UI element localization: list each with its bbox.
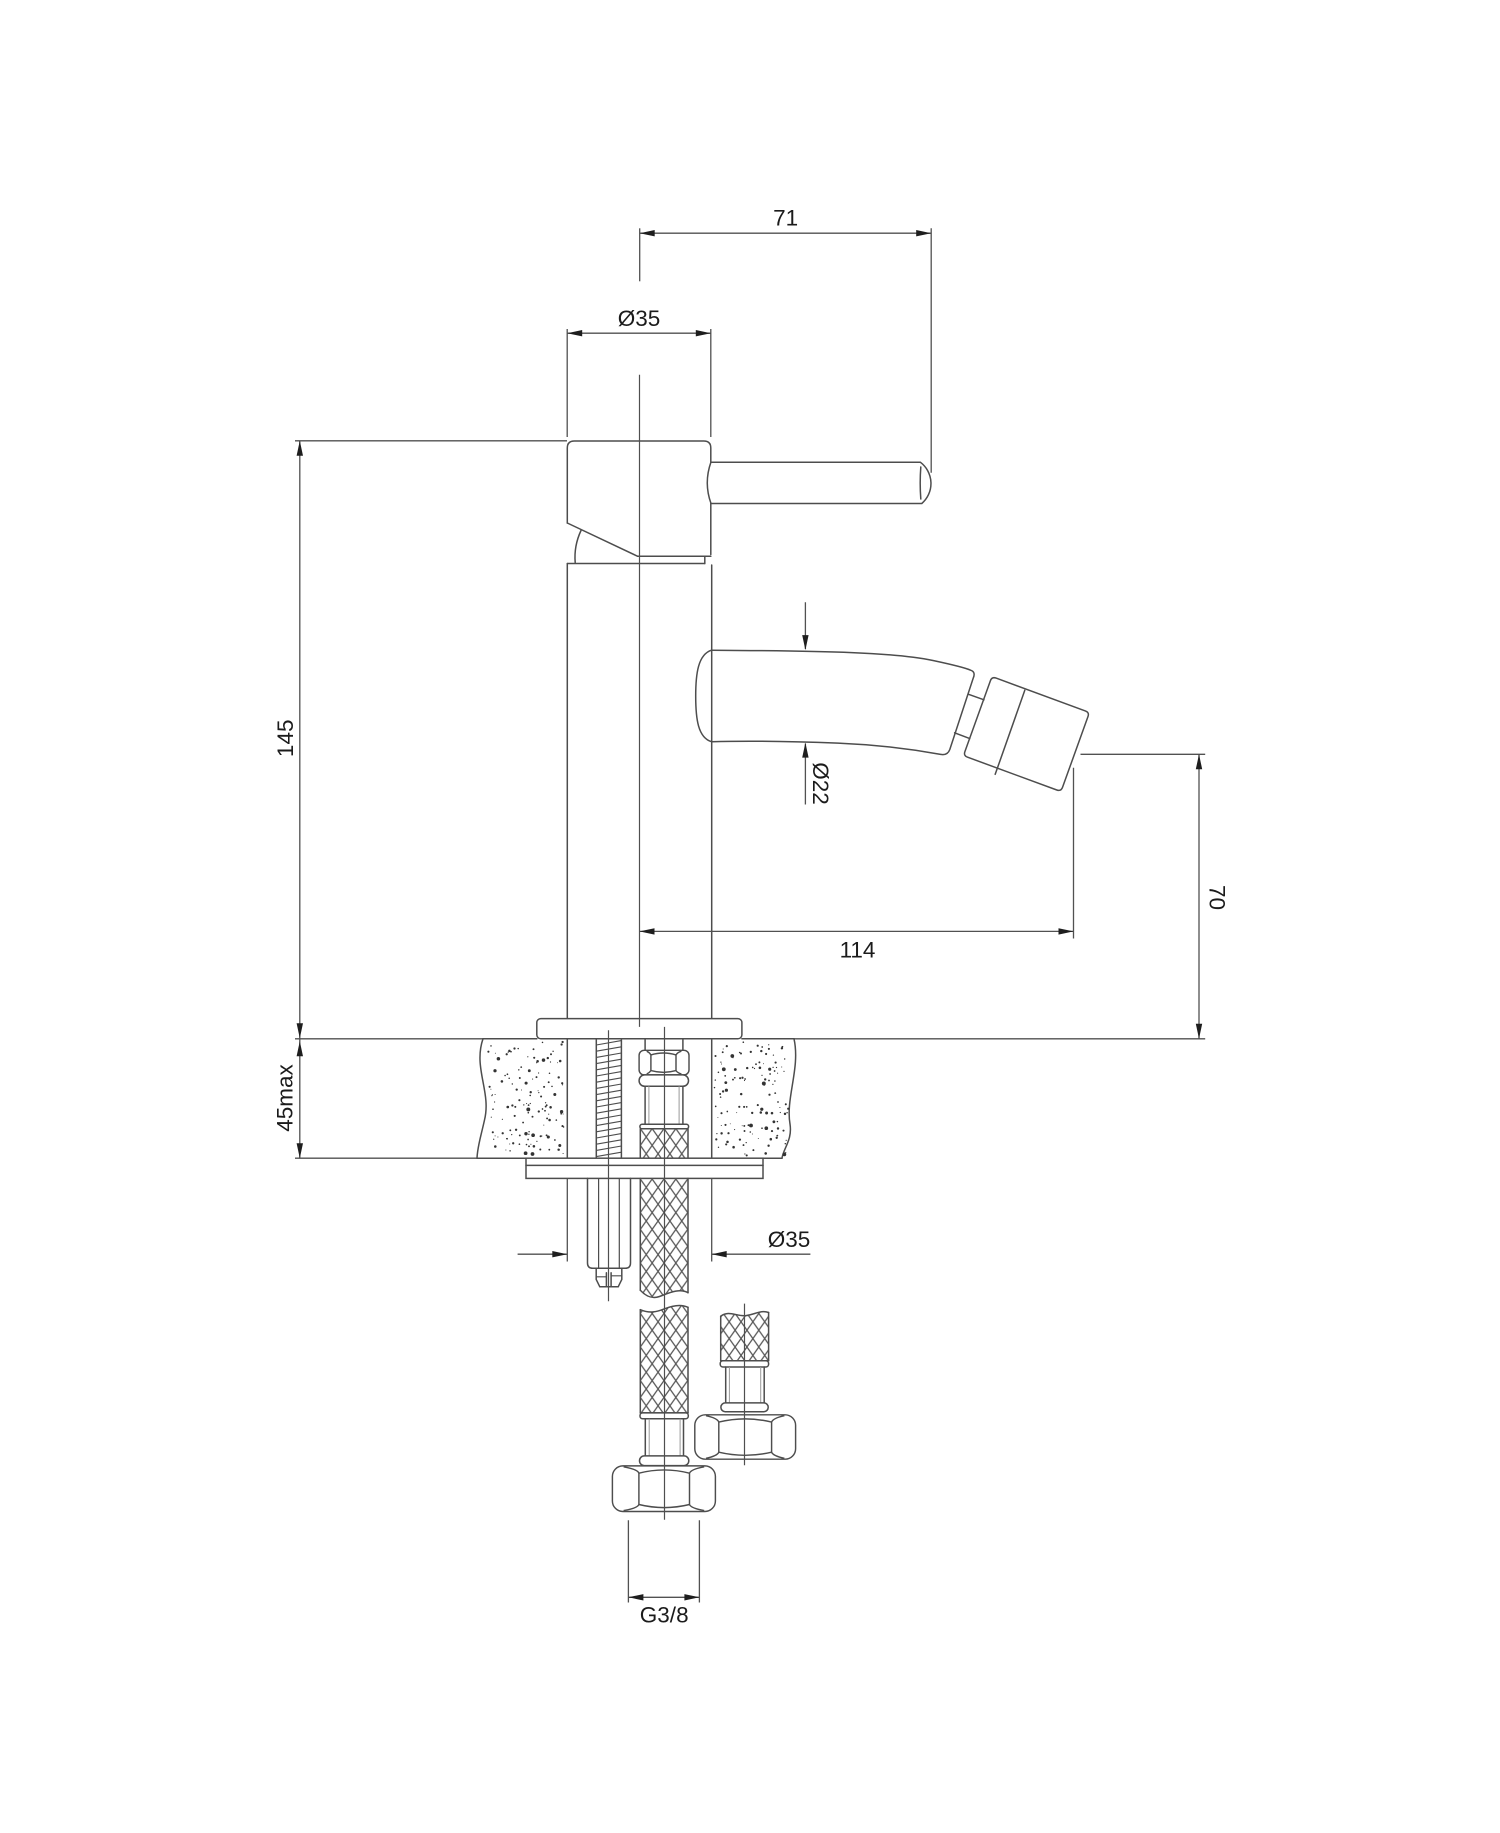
- svg-text:G3/8: G3/8: [640, 1602, 689, 1627]
- svg-text:Ø22: Ø22: [808, 762, 833, 805]
- svg-text:114: 114: [840, 938, 876, 963]
- svg-text:45max: 45max: [273, 1063, 298, 1131]
- svg-text:145: 145: [273, 720, 298, 758]
- svg-text:Ø35: Ø35: [618, 306, 661, 331]
- svg-text:Ø35: Ø35: [768, 1227, 811, 1252]
- svg-text:70: 70: [1205, 885, 1230, 910]
- svg-text:71: 71: [773, 206, 798, 231]
